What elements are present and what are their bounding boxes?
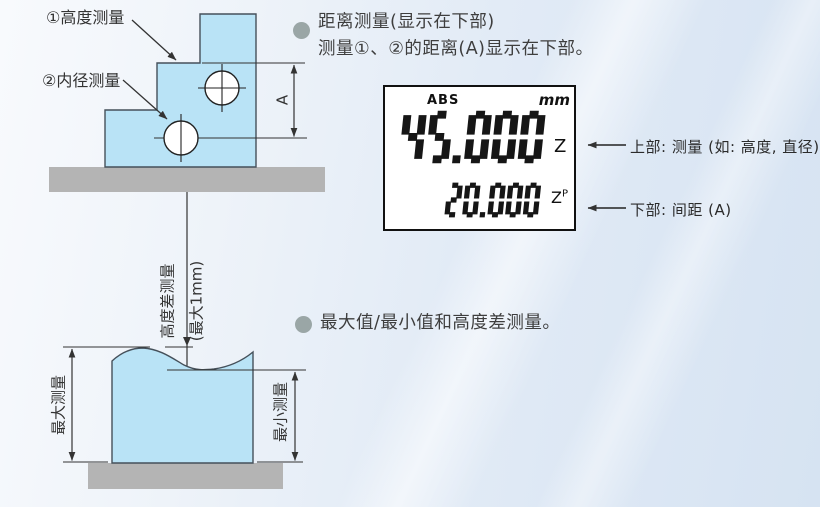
bottom-surface-plate (88, 463, 283, 489)
bullet-icon (293, 22, 310, 39)
bore-measure-label: ②内径测量 (42, 71, 120, 90)
lower-part-label: 下部: 间距 (A) (630, 199, 732, 220)
main-axis-label: Z (554, 136, 566, 157)
section1-text: 距离测量(显示在下部) 测量①、②的距离(A)显示在下部。 (318, 9, 594, 63)
page: A ①高度测量 ②内径测量 高度差测量 (最大1mm) 最大测量 最小测量 距离… (0, 0, 820, 507)
max-measure-label: 最大测量 (50, 375, 68, 435)
bottom-wavy-block (112, 348, 253, 463)
upper-part-label: 上部: 测量 (如: 高度, 直径) (630, 136, 820, 157)
sub-axis-label: ZP (551, 188, 568, 207)
bullet-icon (295, 316, 312, 333)
height-measure-label: ①高度测量 (46, 8, 124, 27)
top-surface-plate (49, 167, 325, 192)
section1-line1: 距离测量(显示在下部) (318, 9, 594, 36)
sub-value-digits (444, 182, 546, 218)
lcd-display: ABS mm Z ZP (383, 85, 576, 231)
unit-label: mm (539, 91, 570, 109)
section2-text: 最大值/最小值和高度差测量。 (320, 310, 560, 337)
section2-line1: 最大值/最小值和高度差测量。 (320, 310, 560, 337)
height-leader-arrow (132, 20, 176, 60)
dim-a-label: A (274, 94, 292, 105)
abs-mode-label: ABS (427, 93, 459, 108)
main-value-digits (400, 110, 552, 164)
min-measure-label: 最小测量 (272, 382, 290, 442)
section1-line2: 测量①、②的距离(A)显示在下部。 (318, 36, 594, 63)
height-diff-note-label: (最大1mm) (188, 261, 206, 341)
height-diff-label: 高度差测量 (159, 263, 177, 338)
diagram-canvas: A ①高度测量 ②内径测量 高度差测量 (最大1mm) 最大测量 最小测量 (0, 0, 820, 507)
